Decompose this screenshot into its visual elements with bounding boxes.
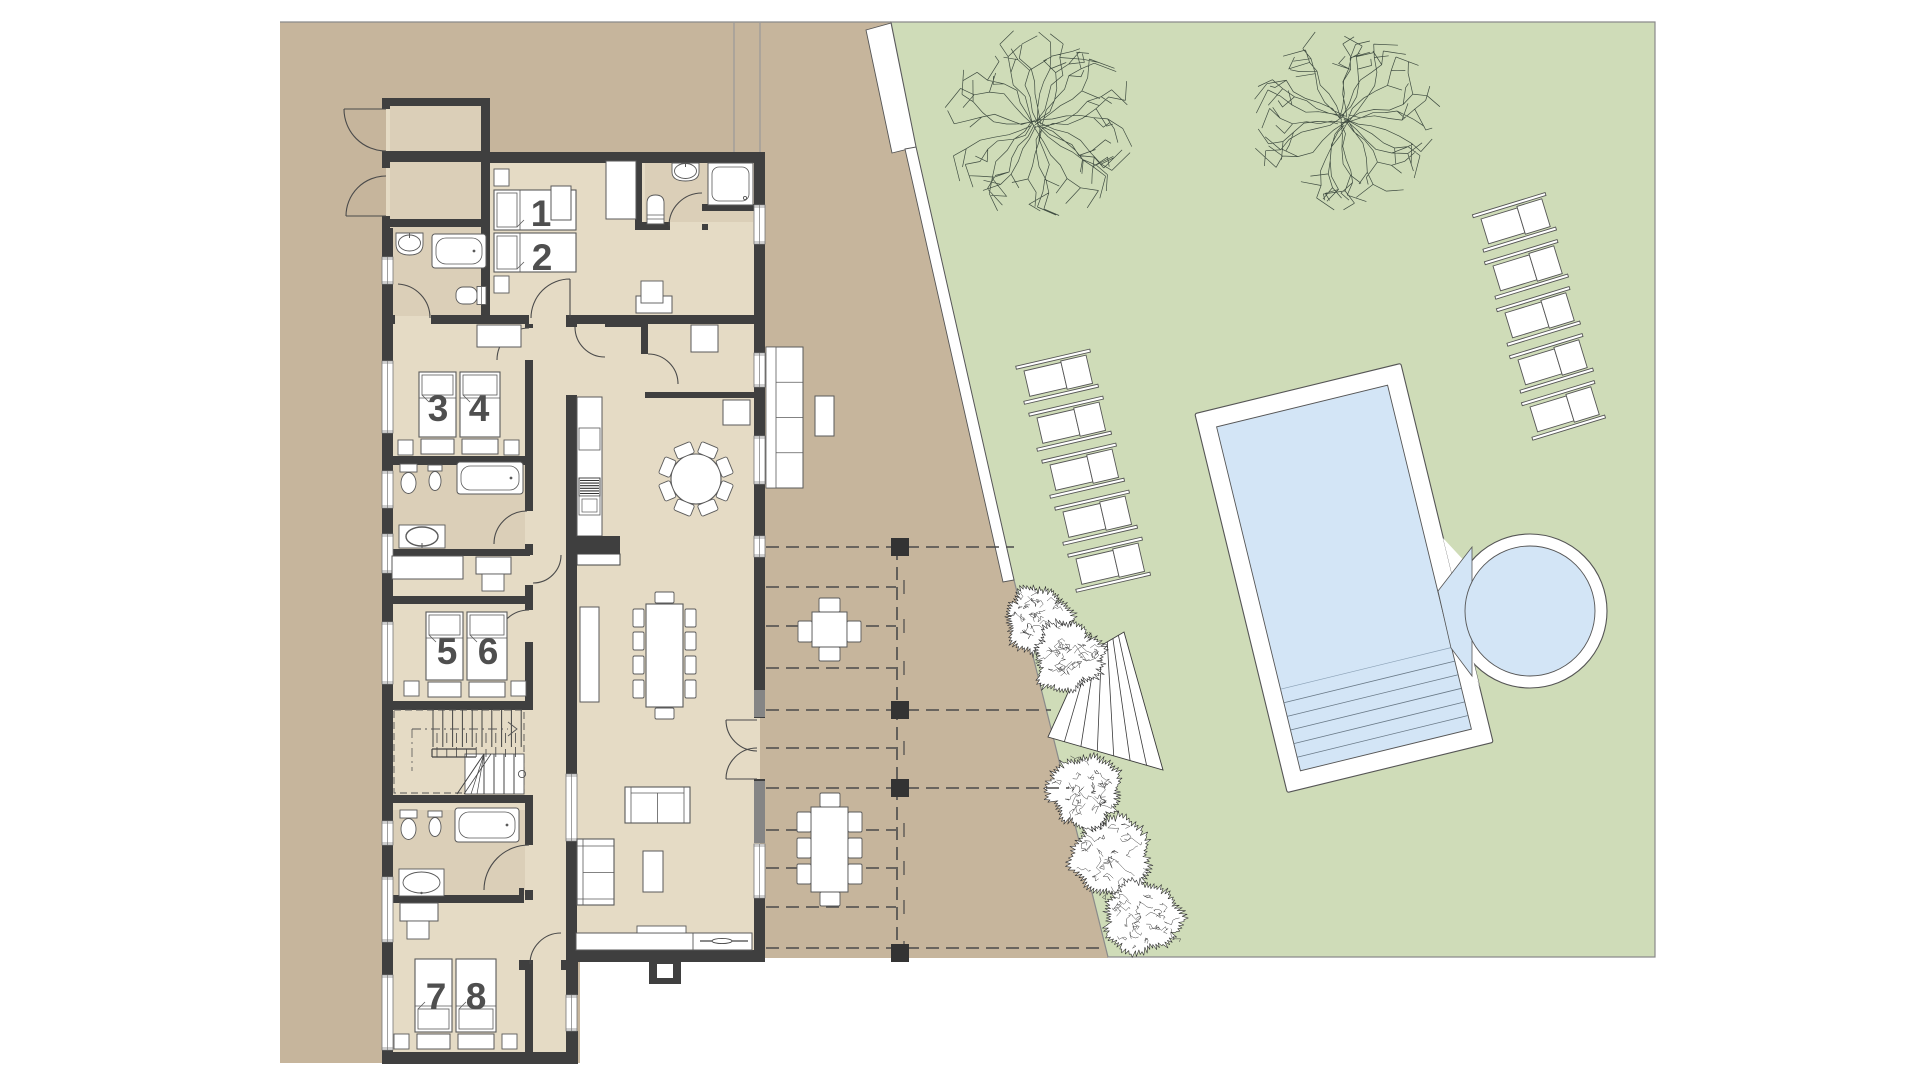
svg-text:3: 3 bbox=[428, 388, 449, 429]
svg-text:8: 8 bbox=[466, 976, 487, 1017]
svg-text:1: 1 bbox=[531, 193, 552, 234]
svg-text:7: 7 bbox=[426, 976, 447, 1017]
svg-text:4: 4 bbox=[469, 388, 490, 429]
svg-text:5: 5 bbox=[437, 631, 458, 672]
svg-text:2: 2 bbox=[532, 237, 553, 278]
svg-text:6: 6 bbox=[478, 631, 499, 672]
